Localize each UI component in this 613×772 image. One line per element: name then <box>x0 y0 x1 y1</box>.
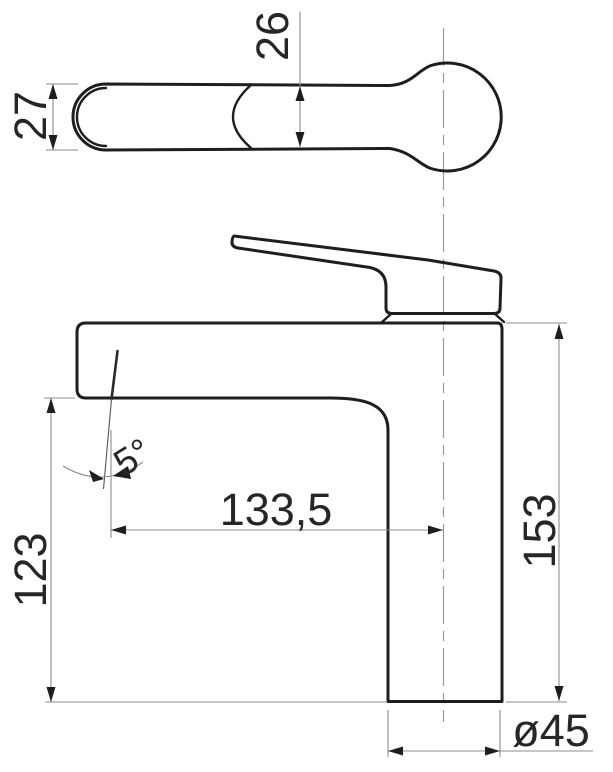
dim-handle-neck-width: 26 <box>247 11 305 147</box>
dim-label-27: 27 <box>5 91 56 141</box>
arrowhead-up <box>296 86 305 101</box>
handle-knob-seam <box>233 85 251 148</box>
arrowhead-down <box>555 686 564 701</box>
arrowhead-right <box>428 526 443 535</box>
arrowhead-left <box>111 526 126 535</box>
aerator-axis-line <box>112 351 118 399</box>
dim-base-diameter: ø45 <box>388 705 593 757</box>
lever-blade-outline <box>232 236 501 314</box>
arrowhead-up <box>555 324 564 339</box>
arrowhead-left <box>388 747 403 756</box>
arrowhead-left <box>89 470 104 482</box>
lever-skirt-flare-left <box>382 314 391 322</box>
lever-skirt-flare-right <box>495 314 504 322</box>
dim-label-133-5: 133,5 <box>220 484 333 535</box>
handle-plan-outline <box>73 63 501 171</box>
arrowhead-down <box>296 132 305 147</box>
drawing-canvas: 27 26 5° <box>0 0 613 772</box>
dim-overall-height: 153 <box>506 323 567 702</box>
dim-label-d45: ø45 <box>512 705 590 756</box>
aerator-axis-extension <box>104 399 112 489</box>
top-view: 27 26 <box>5 11 501 171</box>
dim-handle-end-width: 27 <box>5 84 78 150</box>
side-view: 5° 123 133,5 153 <box>5 236 593 757</box>
dim-label-153: 153 <box>514 493 565 568</box>
arrowhead-right <box>485 747 500 756</box>
dim-label-123: 123 <box>5 532 56 607</box>
arrowhead-down <box>47 687 56 702</box>
arrowhead-up <box>47 398 56 413</box>
dim-label-26: 26 <box>247 11 298 61</box>
dim-spout-outlet-height: 123 <box>5 398 386 702</box>
faucet-dimension-drawing: 27 26 5° <box>0 0 613 772</box>
dim-spout-reach: 133,5 <box>111 484 443 535</box>
